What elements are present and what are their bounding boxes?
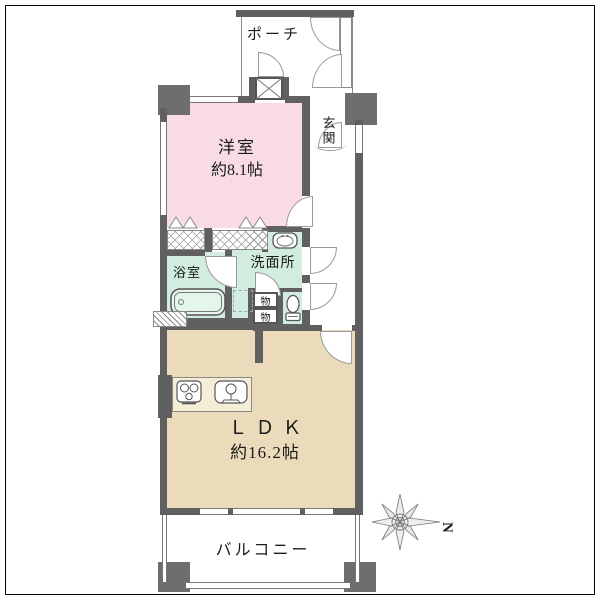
balcony-window-3 [305,508,333,515]
kitchen-sink-icon [214,380,248,406]
floorplan-canvas: 物 物 ポーチ 玄関 洋室 約8.1帖 浴室 洗面所 ＬＤＫ 約16.2帖 バル… [0,0,600,600]
closet-bifold-icon-left [168,216,198,229]
western-room-size: 約8.1帖 [177,160,297,182]
porch-label: ポーチ [244,25,304,45]
closet-bifold-icon-right [238,216,268,229]
corridor-wall-seg3 [302,275,310,283]
left-wall-middle [160,215,167,318]
meter-box-right-post [283,77,289,100]
washing-machine-space [233,290,253,312]
western-room-label: 洋室 約8.1帖 [177,137,297,182]
entrance-side-window [355,125,363,153]
storage-upper-box: 物 [253,292,278,308]
corridor-wall-seg2 [302,228,310,247]
corridor-bottom-wall-left [302,325,322,331]
compass-rose: N [368,492,468,554]
balcony-bottom-rail [186,582,350,589]
closet-right-section [212,230,268,250]
ldk-size: 約16.2帖 [200,442,330,465]
compass-north-label: N [439,522,455,533]
right-wall [355,120,363,510]
balcony-window-1 [200,508,228,515]
washbasin-icon [272,232,298,249]
porch-left-line [241,17,242,97]
balcony-window-2 [233,508,300,515]
western-room-top-window [190,96,238,103]
corridor-wall-seg1 [302,96,310,196]
toilet-icon [285,294,301,322]
ldk-label: ＬＤＫ 約16.2帖 [200,416,330,465]
bath-wash-divider-lower [225,286,232,318]
exterior-pipe-box [153,311,187,327]
meter-box-x-icon [255,77,283,100]
ldk-name: ＬＤＫ [200,416,330,442]
entrance-label: 玄関 [319,109,337,153]
ldk-bottom-wall-seg2 [333,508,363,515]
balcony-label: バルコニー [198,540,328,562]
bathroom-label: 浴室 [168,264,206,282]
left-wall-ldk-lower [160,418,167,508]
balcony-left-rail [162,515,167,582]
stove-icon [176,380,202,405]
ldk-bottom-wall-seg1 [160,508,200,515]
porch-top-wall [236,10,354,17]
washroom-label: 洗面所 [243,255,303,274]
left-wall-upper [160,108,167,122]
bathroom-top-wall [160,250,205,256]
storage-upper-label: 物 [261,293,271,308]
storage-lower-label: 物 [261,309,271,324]
balcony-right-rail [355,515,360,582]
western-room-left-window [160,122,167,215]
western-room-name: 洋室 [177,137,297,160]
kitchen-wall-stub [158,375,172,418]
porch-right-line [352,17,353,93]
storage-lower-box: 物 [253,308,278,324]
closet-left-section [167,230,205,250]
closet-divider [204,228,212,252]
ldk-entry-stub-wall [255,324,263,363]
